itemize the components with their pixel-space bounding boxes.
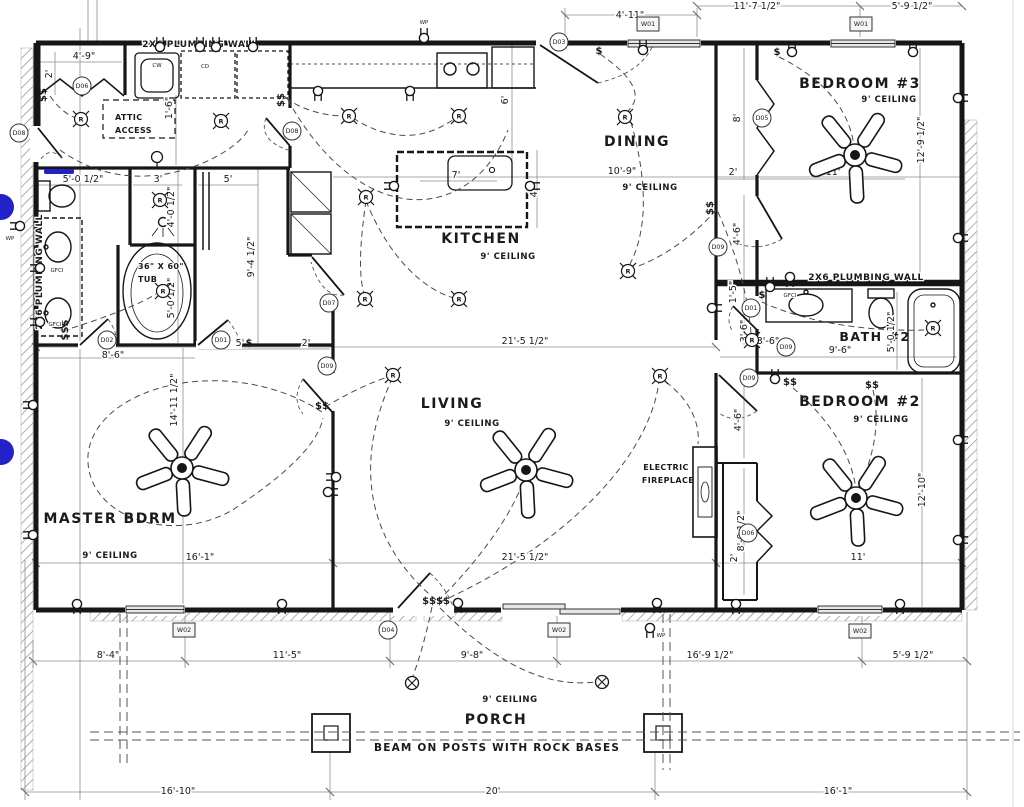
dimension-label: 2' [44,70,55,79]
dimension-label: 16'-10" [161,786,196,797]
recessed-light-icon: R [155,283,171,299]
recessed-light-letter: R [930,324,935,332]
dimension-label: 2' [302,338,311,349]
ceiling-label-living: 9' CEILING [444,419,499,429]
ceiling-fan-icon [808,111,903,203]
door-tag: D06 [739,524,757,542]
dimension-label: 12'-10" [917,473,928,508]
switch-icon: $$ [865,380,879,391]
dimension-label: 3'-6" [757,336,780,347]
outlet-body [313,86,322,95]
dimension-label: 21'-5 1/2" [502,336,549,347]
recessed-light-icon: R [925,320,941,336]
recessed-light-icon: R [73,111,89,127]
switch-icon: $$ [315,401,329,412]
outlet-body [770,374,779,383]
outlet-body [645,623,654,632]
dimension-label: 2' [729,167,738,178]
outlet-body [405,86,414,95]
recessed-light-icon: R [620,263,636,279]
outlet-body [953,233,962,242]
kitchen-island [397,152,527,227]
outlet-body [277,599,286,608]
door-tag-label: D09 [780,344,793,351]
outlet-body [953,93,962,102]
outlet-body [248,42,257,51]
room-label-dining: DINING [604,134,670,150]
note-tub-2: TUB [138,275,157,284]
sliding-door-panel [560,609,620,614]
recessed-light-icon: R [213,113,229,129]
door-tag: D01 [212,331,230,349]
dimension-label: 1'-5" [728,281,739,304]
window-tag: W02 [849,624,871,638]
dimension-label: 5'-0 1/2" [166,278,177,319]
dimension-label: 8'-6" [102,350,125,361]
dimension-label: 11'-7 1/2" [734,1,781,12]
door-tag-label: D04 [382,627,395,634]
ceiling-fan-icon [479,426,574,518]
wp-label: WP [6,236,15,242]
door-tag: D01 [742,299,760,317]
gfci-label: GFCI [49,322,62,328]
outlet-body [28,400,37,409]
recessed-light-letter: R [456,295,461,303]
outlet-icon [313,86,322,101]
cd-label: CD [201,64,209,70]
dimension-label: 8'-4" [97,650,120,661]
door-tag-label: D03 [553,39,566,46]
note-attic-access-1: ATTIC [115,113,143,122]
switch-icon: $$ [705,201,716,215]
outlet-body [389,181,398,190]
note-attic-access-2: ACCESS [115,126,152,135]
outlet-body [453,598,462,607]
recessed-light-icon: R [652,368,668,384]
door-tag: D09 [709,238,727,256]
recessed-light-letter: R [157,196,162,204]
gfci-label: GFCI [51,268,64,274]
recessed-light-letter: R [390,371,395,379]
outlet-icon [707,303,722,312]
outlet-body [953,435,962,444]
dimension-label: 2' [729,554,740,563]
outlet-icon [384,181,399,190]
outlet-body [731,599,740,608]
outlet-body [895,599,904,608]
dimension-label: 16'-9 1/2" [687,650,734,661]
outlet-body [638,45,647,54]
dimension-label: 9'-4 1/2" [246,237,257,278]
room-label-bath2: BATH #2 [839,329,910,344]
outlet-body [72,599,81,608]
door-tag-label: D09 [712,244,725,251]
blue-dot-mark [0,194,14,220]
recessed-light-icon: R [451,291,467,307]
outlet-icon [405,86,414,101]
floor-plan-sheet: MASTER BDRM 9' CEILING LIVING 9' CEILING… [0,0,1024,807]
dimension-label: 16'-1" [824,786,853,797]
switch-icon: $$ [783,377,797,388]
recessed-light-letter: R [657,372,662,380]
recessed-light-letter: R [749,336,754,344]
outlet-body [787,47,796,56]
room-label-bedroom3: BEDROOM #3 [799,76,921,92]
window-tag-label: W01 [854,21,868,28]
door-tag-label: D01 [215,337,228,344]
recessed-light-icon: R [357,291,373,307]
window-tag: W01 [850,17,872,31]
dimension-label: 5' [236,338,245,349]
dimension-label: 9'-6" [829,345,852,356]
switch-icon: $ [246,338,253,349]
note-beam: BEAM ON POSTS WITH ROCK BASES [374,742,620,754]
room-label-living: LIVING [421,396,483,412]
dimension-label: 5'-9 1/2" [892,1,933,12]
switch-icon: $ [596,46,603,57]
door-tag-label: D09 [743,375,756,382]
door-tag-label: D07 [323,300,336,307]
dimension-label: 5' [224,174,233,185]
recessed-light-icon: R [744,332,760,348]
note-fireplace-1: ELECTRIC [643,463,689,472]
outlet-icon [326,472,341,481]
door-tag-label: D09 [321,363,334,370]
switch-icon: $$$$ [422,596,450,607]
recessed-light-letter: R [363,193,368,201]
door-tag: D09 [318,357,336,375]
outlet-body [785,272,794,281]
outlet-body [525,181,534,190]
ceiling-label-dining: 9' CEILING [622,183,677,193]
door-tag: D06 [73,77,91,95]
ceiling-light-circle [152,152,163,163]
outlet-body [35,317,44,326]
dimension-label: 12'-9 1/2" [916,117,927,164]
porch-light-icon [596,676,609,689]
room-label-porch: PORCH [465,712,527,728]
dimension-label: 9'-8" [461,650,484,661]
outlet-body [15,221,24,230]
dimension-label: 4'-6" [733,409,744,432]
laundry-fixtures [135,51,288,98]
dimension-label: 11' [851,552,866,563]
dimension-label: 14'-11 1/2" [169,374,180,427]
dimension-label: 5'-9 1/2" [893,650,934,661]
door-tag-label: D06 [742,530,755,537]
blue-dash-mark [44,169,74,174]
dimension-label: 20' [486,786,501,797]
window-tag-label: W02 [177,627,191,634]
recessed-light-letter: R [456,112,461,120]
door-tag: D03 [550,33,568,51]
dimension-label: 4'-9" [73,51,96,62]
door-tag-label: D05 [756,115,769,122]
porch-light-icon [406,677,419,690]
recessed-light-letter: R [362,295,367,303]
gfci-label: GFCI [784,293,797,299]
dimension-label: 16'-1" [186,552,215,563]
ceiling-fan-icon [135,424,230,516]
window-tag-label: W02 [853,628,867,635]
dimension-label: 3' [154,174,163,185]
blue-dot-mark [0,439,14,465]
recessed-light-letter: R [625,267,630,275]
outlet-body [707,303,716,312]
ceiling-label-kitchen: 9' CEILING [480,252,535,262]
outlet-icon [765,277,774,292]
outlet-icon [645,623,654,638]
door-tag: D09 [777,338,795,356]
dimension-label: 6' [500,96,511,105]
window-tag: W02 [548,623,570,637]
windows [126,40,895,614]
outlet-body [155,42,164,51]
wiring-arcs [50,54,925,683]
window-tag: W02 [173,623,195,637]
outlet-body [419,33,428,42]
wp-label: WP [657,633,666,639]
door-tag: D08 [283,122,301,140]
recessed-light-letter: R [622,113,627,121]
switch-icon: $$ [38,88,49,102]
outlet-icon [770,369,779,384]
ceiling-light-icon [152,152,163,169]
cw-label: CW [152,63,162,69]
switch-icon: $ [774,47,781,58]
recessed-light-icon: R [358,189,374,205]
door-tag: D09 [740,369,758,387]
outlet-body [28,530,37,539]
note-fireplace-2: FIREPLACE [642,476,694,485]
dimension-label: 10'-9" [608,166,637,177]
door-tag-label: D06 [76,83,89,90]
dimension-label: 7' [452,170,461,181]
outlet-icon [525,181,540,190]
recessed-light-icon: R [152,192,168,208]
door-tag: D08 [10,124,28,142]
window-tag: W01 [637,17,659,31]
door-tag: D05 [753,109,771,127]
door-tag: D04 [379,621,397,639]
door-tag: D02 [98,331,116,349]
outlet-icon [419,28,428,43]
dimension-label: 5'-0 1/2" [886,312,897,353]
recessed-light-letter: R [346,112,351,120]
outlet-body [323,487,332,496]
recessed-light-icon: R [385,367,401,383]
outlet-icon [10,221,25,230]
recessed-light-letter: R [78,115,83,123]
note-plumbing-wall-bath2: 2X6 PLUMBING WALL [808,273,924,283]
dimension-label: 8' [732,114,743,123]
outlet-body [35,263,44,272]
kitchen-counter [290,47,536,254]
room-label-master: MASTER BDRM [43,511,176,527]
electric-fireplace [693,447,717,537]
room-label-bedroom2: BEDROOM #2 [799,394,921,410]
window-tag-label: W02 [552,627,566,634]
dimension-label: 5'-0 1/2" [63,174,104,185]
switch-icon: $$ [276,93,287,107]
ceiling-label-bedroom3: 9' CEILING [861,95,916,105]
recessed-light-icon: R [617,109,633,125]
outlet-body [331,472,340,481]
floor-plan-drawing: MASTER BDRM 9' CEILING LIVING 9' CEILING… [0,0,1024,807]
switch-icon: $$$ [60,320,71,341]
door-tag-label: D08 [286,128,299,135]
dimension-label: 21'-5 1/2" [502,552,549,563]
sliding-door-panel [503,604,565,609]
door-tag: D07 [320,294,338,312]
door-tag-label: D01 [745,305,758,312]
outlet-icon [953,93,968,102]
dimension-label: 4'-6" [732,223,743,246]
wp-label: WP [420,20,429,26]
outlet-body [953,535,962,544]
dimension-label: 1'-6" [164,97,175,120]
outlet-icon [323,487,338,496]
ceiling-fan-icon [809,454,904,546]
recessed-light-letter: R [218,117,223,125]
door-tag-label: D02 [101,337,114,344]
outlet-body [908,47,917,56]
outlet-body [211,42,220,51]
ceiling-label-master: 9' CEILING [82,551,137,561]
recessed-light-icon: R [341,108,357,124]
dimension-label: 11'-5" [273,650,302,661]
door-tag-label: D08 [13,130,26,137]
window-tag-label: W01 [641,21,655,28]
recessed-light-letter: R [160,287,165,295]
recessed-light-icon: R [451,108,467,124]
ceiling-label-porch: 9' CEILING [482,695,537,705]
outlet-body [195,42,204,51]
ceiling-label-bedroom2: 9' CEILING [853,415,908,425]
refrigerator-icon [492,47,534,88]
outlet-body [765,282,774,291]
room-label-kitchen: KITCHEN [441,231,520,247]
outlet-body [652,598,661,607]
switch-icon: $ [759,290,766,301]
note-tub-1: 36" X 60" [138,262,184,271]
